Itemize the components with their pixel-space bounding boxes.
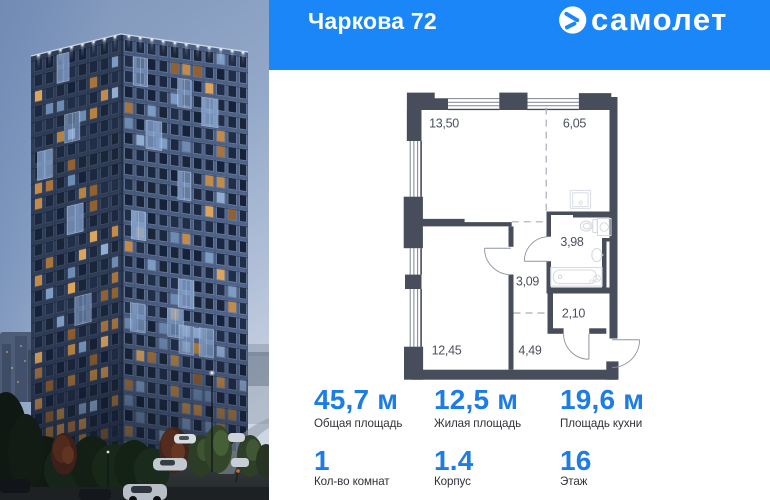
- svg-text:4,49: 4,49: [518, 343, 541, 357]
- svg-text:6,05: 6,05: [563, 117, 586, 131]
- svg-text:12,45: 12,45: [432, 343, 462, 357]
- svg-text:3,09: 3,09: [516, 275, 539, 289]
- svg-text:13,50: 13,50: [429, 117, 459, 131]
- svg-text:3,98: 3,98: [560, 235, 583, 249]
- svg-text:2,10: 2,10: [562, 306, 585, 320]
